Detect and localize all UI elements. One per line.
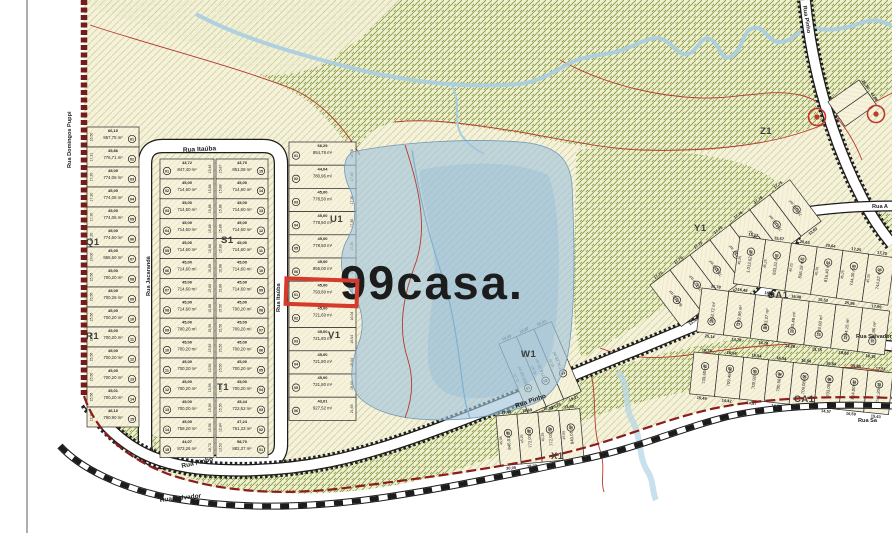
svg-text:721,60 m²: 721,60 m²	[313, 313, 333, 318]
block-label-w1: W1	[521, 349, 536, 360]
subdivision-map-svg: 66,29854,78 m²16,500144,04780,96 m²17,46…	[0, 0, 892, 533]
svg-text:15,56: 15,56	[90, 353, 94, 362]
svg-text:45,00: 45,00	[237, 379, 248, 384]
street-label-domingos-puppi: Rua Domingos Puppi	[67, 111, 73, 168]
svg-text:45,00: 45,00	[317, 282, 328, 287]
svg-text:714,60 m²: 714,60 m²	[232, 287, 252, 292]
svg-text:15,56: 15,56	[208, 403, 212, 412]
svg-text:05: 05	[165, 249, 169, 253]
svg-text:06: 06	[827, 377, 832, 381]
svg-text:03: 03	[130, 177, 134, 181]
svg-text:714,60 m²: 714,60 m²	[177, 227, 197, 232]
street-label-jacaranda: Rua Jacarandá	[146, 255, 152, 296]
svg-text:45,00: 45,00	[182, 180, 193, 185]
svg-text:01: 01	[294, 293, 298, 297]
svg-text:08: 08	[165, 309, 169, 313]
svg-text:45,00: 45,00	[237, 319, 248, 324]
lot-s1t1_b-03: 45,44722,62 m²15,5603	[216, 398, 268, 418]
svg-text:700,20 m²: 700,20 m²	[103, 395, 123, 400]
svg-text:45,00: 45,00	[317, 375, 328, 380]
svg-text:02: 02	[774, 253, 779, 258]
block-label-z1: Z1	[760, 126, 772, 137]
svg-text:46,10: 46,10	[108, 408, 119, 413]
svg-text:66,10: 66,10	[108, 128, 119, 133]
lot-q1r1-02: 45,86776,71 m²17,2102	[87, 147, 139, 167]
svg-text:45,00: 45,00	[182, 260, 193, 265]
lot-q1r1-09: 45,00700,26 m²15,5609	[87, 287, 139, 307]
lot-q1r1-10: 45,00700,20 m²15,5610	[87, 307, 139, 327]
lot-s1t1_a-05: 45,00714,60 m²15,8805	[160, 239, 214, 259]
block-t1: 43,70851,08 m²15,871545,00714,60 m²15,88…	[216, 159, 268, 458]
svg-text:700,20 m²: 700,20 m²	[232, 366, 252, 371]
svg-text:45,86: 45,86	[108, 148, 119, 153]
svg-text:45,00: 45,00	[237, 359, 248, 364]
svg-text:855,00 m²: 855,00 m²	[313, 266, 333, 271]
svg-text:03: 03	[548, 427, 552, 431]
svg-text:12: 12	[259, 229, 263, 233]
svg-text:700,20 m²: 700,20 m²	[103, 335, 123, 340]
svg-text:03: 03	[165, 209, 169, 213]
svg-text:45,00: 45,00	[237, 280, 248, 285]
svg-text:721,80 m²: 721,80 m²	[313, 382, 333, 387]
svg-text:05: 05	[259, 368, 263, 372]
svg-text:714,60 m²: 714,60 m²	[177, 287, 197, 292]
svg-text:03: 03	[259, 408, 263, 412]
svg-text:17,49: 17,49	[501, 409, 512, 415]
svg-text:13,53: 13,53	[219, 443, 223, 452]
svg-text:15,56: 15,56	[208, 383, 212, 392]
svg-text:15,56: 15,56	[90, 393, 94, 402]
svg-text:44,04: 44,04	[317, 166, 328, 171]
svg-text:15,88: 15,88	[208, 204, 212, 213]
svg-text:45,00: 45,00	[182, 200, 193, 205]
svg-text:05: 05	[852, 264, 857, 269]
svg-text:15,56: 15,56	[90, 293, 94, 302]
svg-text:17,21: 17,21	[90, 153, 94, 162]
svg-text:15,88: 15,88	[208, 224, 212, 233]
svg-text:45,00: 45,00	[182, 280, 193, 285]
svg-text:15,56: 15,56	[219, 344, 223, 353]
lot-q1r1-04: 45,00774,06 m²17,2004	[87, 187, 139, 207]
svg-text:01: 01	[130, 137, 134, 141]
block-label-x1: X1	[551, 451, 564, 462]
lot-u1v1-06: 43,01927,52 m²21,6506	[289, 397, 356, 420]
svg-text:07: 07	[165, 289, 169, 293]
svg-text:714,60 m²: 714,60 m²	[232, 267, 252, 272]
svg-text:927,52 m²: 927,52 m²	[313, 405, 333, 410]
svg-text:12: 12	[130, 357, 134, 361]
block-q1r1: 66,10857,75 m²16,500145,86776,71 m²17,21…	[87, 127, 139, 427]
svg-text:05: 05	[130, 217, 134, 221]
svg-text:13: 13	[259, 209, 263, 213]
svg-text:06: 06	[877, 268, 882, 273]
svg-text:13: 13	[852, 380, 857, 384]
svg-text:45,00: 45,00	[108, 308, 119, 313]
svg-text:01: 01	[749, 250, 754, 255]
lot-u1v1-03: 45,00778,50 m²17,3003	[289, 188, 356, 211]
svg-text:15,56: 15,56	[90, 273, 94, 282]
lot-s1t1_a-11: 45,00700,20 m²15,5611	[160, 358, 214, 378]
plat-map: 66,29854,78 m²16,500144,04780,96 m²17,46…	[0, 0, 892, 533]
svg-text:15,56: 15,56	[219, 304, 223, 313]
svg-text:774,06 m²: 774,06 m²	[103, 175, 123, 180]
svg-text:06: 06	[294, 409, 298, 413]
block-label-ca1: CA1	[794, 394, 815, 405]
svg-text:11: 11	[843, 336, 847, 340]
svg-text:02: 02	[165, 189, 169, 193]
svg-text:15,88: 15,88	[219, 204, 223, 213]
block-label-u1: U1	[330, 214, 343, 225]
svg-text:15,89: 15,89	[543, 405, 554, 411]
svg-text:06: 06	[294, 270, 298, 274]
svg-text:15,69: 15,69	[522, 407, 533, 413]
svg-text:700,20 m²: 700,20 m²	[232, 386, 252, 391]
lot-s1t1_b-09: 45,00714,60 m²15,8809	[216, 278, 268, 298]
lot-s1t1_b-06: 45,00700,20 m²15,5606	[216, 338, 268, 358]
svg-text:47,24: 47,24	[237, 419, 248, 424]
lot-u1v1-04: 45,00721,80 m²16,0404	[289, 351, 356, 374]
lot-s1t1_a-13: 45,00700,20 m²15,5613	[160, 398, 214, 418]
svg-text:45,00: 45,00	[237, 300, 248, 305]
svg-text:07: 07	[130, 257, 134, 261]
svg-text:45,00: 45,00	[237, 260, 248, 265]
svg-text:45,00: 45,00	[182, 379, 193, 384]
lot-s1t1_a-02: 45,00714,60 m²15,8802	[160, 179, 214, 199]
svg-text:15,88: 15,88	[219, 184, 223, 193]
svg-text:15,88: 15,88	[219, 284, 223, 293]
lot-s1t1_b-07: 45,00700,20 m²15,5607	[216, 318, 268, 338]
lot-s1t1_a-12: 45,00700,20 m²15,5612	[160, 378, 214, 398]
svg-text:15: 15	[130, 417, 134, 421]
svg-text:12: 12	[877, 383, 882, 387]
svg-text:10: 10	[130, 317, 134, 321]
svg-text:45,01: 45,01	[108, 388, 119, 393]
svg-text:700,20 m²: 700,20 m²	[103, 375, 123, 380]
svg-text:45,00: 45,00	[108, 288, 119, 293]
svg-text:45,00: 45,00	[108, 168, 119, 173]
svg-text:15,88: 15,88	[208, 284, 212, 293]
svg-text:45,00: 45,00	[182, 240, 193, 245]
svg-text:15: 15	[259, 169, 263, 173]
lot-s1t1_b-02: 47,24761,33 m²12,8402	[216, 418, 268, 438]
svg-text:774,06 m²: 774,06 m²	[103, 215, 123, 220]
lot-q1r1-07: 45,00855,60 m²19,0007	[87, 247, 139, 267]
svg-text:06: 06	[259, 348, 263, 352]
svg-text:700,20 m²: 700,20 m²	[177, 366, 197, 371]
svg-text:01: 01	[259, 448, 263, 452]
lot-q1r1-12: 45,00700,20 m²15,5612	[87, 347, 139, 367]
lot-s1t1_a-01: 43,72847,40 m²15,4801	[160, 159, 214, 179]
svg-text:778,50 m²: 778,50 m²	[313, 197, 333, 202]
svg-text:13: 13	[130, 377, 134, 381]
lot-s1t1_a-08: 45,00714,60 m²15,8808	[160, 298, 214, 318]
svg-text:761,33 m²: 761,33 m²	[232, 426, 252, 431]
svg-text:45,00: 45,00	[108, 348, 119, 353]
svg-text:45,00: 45,00	[108, 368, 119, 373]
lot-s1t1_a-03: 45,00714,50 m²15,8803	[160, 199, 214, 219]
svg-text:700,20 m²: 700,20 m²	[232, 346, 252, 351]
svg-text:45,00: 45,00	[108, 328, 119, 333]
svg-text:15,56: 15,56	[208, 364, 212, 373]
svg-text:780,96 m²: 780,96 m²	[313, 173, 333, 178]
svg-text:15,88: 15,88	[208, 304, 212, 313]
svg-text:05: 05	[294, 386, 298, 390]
svg-text:45,05: 45,05	[499, 436, 504, 445]
lot-q1r1-08: 45,00700,20 m²15,5608	[87, 267, 139, 287]
lot-s1t1_a-14: 45,00759,20 m²15,5614	[160, 418, 214, 438]
lot-q1r1-01: 66,10857,75 m²16,5001	[87, 127, 139, 147]
lot-s1t1_a-04: 45,00714,60 m²15,8804	[160, 219, 214, 239]
lot-q1r1-03: 45,00774,06 m²17,2003	[87, 167, 139, 187]
svg-text:45,25: 45,25	[541, 432, 546, 441]
svg-text:851,08 m²: 851,08 m²	[232, 167, 252, 172]
svg-text:15,56: 15,56	[90, 373, 94, 382]
svg-text:45,00: 45,00	[182, 319, 193, 324]
svg-text:714,60 m²: 714,60 m²	[232, 227, 252, 232]
svg-text:07: 07	[259, 328, 263, 332]
svg-text:15,56: 15,56	[219, 403, 223, 412]
svg-text:790,90 m²: 790,90 m²	[103, 415, 123, 420]
svg-text:01: 01	[506, 431, 510, 435]
street-label-rua-a: Rua A	[872, 204, 888, 210]
lot-s1t1_b-08: 45,00700,20 m²15,5608	[216, 298, 268, 318]
lot-u1v1-04: 45,00778,50 m²17,3004	[289, 212, 356, 235]
svg-text:25: 25	[790, 329, 795, 333]
svg-text:45,00: 45,00	[182, 359, 193, 364]
svg-text:45,00: 45,00	[317, 352, 328, 357]
lot-s1t1_a-15: 44,07873,26 m²18,7215	[160, 438, 214, 458]
block-label-r1: R1	[86, 331, 99, 342]
svg-text:43,70: 43,70	[237, 160, 248, 165]
svg-text:17,20: 17,20	[90, 213, 94, 222]
svg-text:45,05: 45,05	[562, 431, 567, 440]
svg-text:714,50 m²: 714,50 m²	[177, 207, 197, 212]
svg-text:03: 03	[294, 200, 298, 204]
svg-text:45,00: 45,00	[317, 236, 328, 241]
svg-text:15,88: 15,88	[208, 244, 212, 253]
svg-text:06: 06	[165, 269, 169, 273]
svg-text:12,84: 12,84	[219, 423, 223, 432]
svg-text:15,56: 15,56	[90, 313, 94, 322]
svg-text:10: 10	[259, 269, 263, 273]
svg-text:700,20 m²: 700,20 m²	[177, 386, 197, 391]
svg-text:01: 01	[165, 169, 169, 173]
lot-q1r1-14: 45,01700,20 m²15,5614	[87, 387, 139, 407]
svg-text:05: 05	[802, 375, 807, 379]
lot-s1t1_b-05: 45,00700,20 m²15,5605	[216, 358, 268, 378]
svg-text:873,26 m²: 873,26 m²	[177, 446, 197, 451]
svg-text:02: 02	[527, 429, 531, 433]
lot-u1v1-05: 45,00721,80 m²16,0405	[289, 374, 356, 397]
svg-text:15,56: 15,56	[219, 324, 223, 333]
svg-text:847,40 m²: 847,40 m²	[177, 167, 197, 172]
svg-text:45,00: 45,00	[108, 268, 119, 273]
svg-text:15,56: 15,56	[219, 364, 223, 373]
lot-q1r1-05: 45,00774,06 m²17,2005	[87, 207, 139, 227]
svg-text:714,60 m²: 714,60 m²	[177, 187, 197, 192]
svg-text:58,70: 58,70	[237, 439, 248, 444]
block-label-t1: T1	[217, 382, 229, 393]
block-label-da1: DA1	[768, 290, 789, 301]
svg-text:12: 12	[165, 388, 169, 392]
svg-text:45,00: 45,00	[108, 208, 119, 213]
lot-s1t1_b-14: 45,00714,60 m²15,8814	[216, 179, 268, 199]
svg-text:855,60 m²: 855,60 m²	[103, 255, 123, 260]
svg-text:714,60 m²: 714,60 m²	[232, 187, 252, 192]
block-label-y1: Y1	[694, 223, 707, 234]
svg-text:11: 11	[165, 368, 169, 372]
street-label-salvador-inner: Rua Salvador	[856, 334, 892, 340]
svg-text:09: 09	[165, 328, 169, 332]
svg-text:17,20: 17,20	[90, 193, 94, 202]
svg-text:11: 11	[130, 337, 134, 341]
svg-text:15,87: 15,87	[219, 165, 223, 174]
block-label-v1: V1	[328, 330, 341, 341]
svg-text:854,78 m²: 854,78 m²	[313, 150, 333, 155]
svg-text:45,44: 45,44	[237, 399, 248, 404]
watermark-99casa: 99casa.	[340, 256, 524, 309]
svg-text:793,80 m²: 793,80 m²	[313, 289, 333, 294]
svg-text:45,00: 45,00	[317, 329, 328, 334]
svg-text:08: 08	[130, 277, 134, 281]
svg-text:43,72: 43,72	[182, 160, 193, 165]
svg-text:16,50: 16,50	[90, 133, 94, 142]
svg-text:45,25: 45,25	[520, 434, 525, 443]
svg-text:45,00: 45,00	[237, 240, 248, 245]
svg-text:700,20 m²: 700,20 m²	[103, 275, 123, 280]
svg-text:02: 02	[130, 157, 134, 161]
block-label-s1: S1	[221, 235, 234, 246]
svg-text:09: 09	[259, 289, 263, 293]
svg-text:21,65: 21,65	[350, 404, 354, 413]
svg-text:13: 13	[165, 408, 169, 412]
svg-text:08: 08	[259, 309, 263, 313]
svg-text:15,56: 15,56	[208, 324, 212, 333]
svg-text:700,20 m²: 700,20 m²	[103, 315, 123, 320]
svg-text:857,75 m²: 857,75 m²	[103, 135, 123, 140]
svg-text:13,49: 13,49	[564, 404, 575, 410]
lot-s1t1_a-07: 45,00714,60 m²15,8807	[160, 278, 214, 298]
svg-text:714,60 m²: 714,60 m²	[232, 247, 252, 252]
lot-s1t1_b-13: 45,00714,60 m²15,8813	[216, 199, 268, 219]
svg-text:43,01: 43,01	[317, 398, 328, 403]
svg-text:02: 02	[294, 316, 298, 320]
svg-text:45,00: 45,00	[182, 419, 193, 424]
svg-text:02: 02	[259, 428, 263, 432]
svg-text:02: 02	[294, 177, 298, 181]
svg-text:45,00: 45,00	[182, 300, 193, 305]
svg-text:03: 03	[294, 340, 298, 344]
svg-text:700,26 m²: 700,26 m²	[103, 295, 123, 300]
svg-text:45,00: 45,00	[237, 180, 248, 185]
svg-text:05: 05	[294, 247, 298, 251]
svg-text:759,20 m²: 759,20 m²	[177, 426, 197, 431]
svg-text:721,80 m²: 721,80 m²	[313, 359, 333, 364]
svg-text:15,88: 15,88	[208, 184, 212, 193]
svg-text:19,00: 19,00	[90, 253, 94, 262]
svg-text:15: 15	[165, 448, 169, 452]
svg-text:09: 09	[130, 297, 134, 301]
lot-s1t1_b-01: 58,70882,37 m²13,5301	[216, 438, 268, 458]
svg-text:714,60 m²: 714,60 m²	[177, 247, 197, 252]
svg-text:15,56: 15,56	[208, 423, 212, 432]
svg-text:15,88: 15,88	[208, 264, 212, 273]
lot-s1t1_a-10: 45,00700,20 m²15,5610	[160, 338, 214, 358]
svg-text:722,62 m²: 722,62 m²	[232, 406, 252, 411]
svg-text:02: 02	[728, 367, 733, 371]
svg-text:10: 10	[165, 348, 169, 352]
svg-text:714,60 m²: 714,60 m²	[232, 207, 252, 212]
lot-s1t1_b-15: 43,70851,08 m²15,8715	[216, 159, 268, 179]
svg-text:700,20 m²: 700,20 m²	[177, 406, 197, 411]
svg-text:16,04: 16,04	[350, 335, 354, 344]
svg-text:15,88: 15,88	[219, 264, 223, 273]
lot-s1t1_b-10: 45,00714,60 m²15,8810	[216, 259, 268, 279]
svg-text:15,48: 15,48	[208, 165, 212, 174]
svg-text:778,50 m²: 778,50 m²	[313, 243, 333, 248]
lot-ca1-12: 17,5115,43741,20 m²12	[863, 365, 892, 420]
svg-text:45,00: 45,00	[317, 190, 328, 195]
svg-text:16,59: 16,59	[846, 411, 857, 417]
svg-text:03: 03	[800, 257, 805, 262]
svg-text:45,00: 45,00	[108, 188, 119, 193]
svg-text:07: 07	[736, 323, 741, 327]
svg-text:700,20 m²: 700,20 m²	[232, 326, 252, 331]
svg-text:45,00: 45,00	[237, 339, 248, 344]
svg-text:714,60 m²: 714,60 m²	[177, 307, 197, 312]
svg-text:01: 01	[703, 364, 708, 368]
street-label-salvador-east: Rua Sa	[858, 418, 878, 424]
svg-text:776,71 m²: 776,71 m²	[103, 155, 123, 160]
svg-text:01: 01	[294, 154, 298, 158]
svg-text:11: 11	[259, 249, 263, 253]
lot-q1r1-13: 45,00700,20 m²15,5613	[87, 367, 139, 387]
svg-text:45,00: 45,00	[317, 213, 328, 218]
svg-text:15,56: 15,56	[208, 344, 212, 353]
svg-text:45,00: 45,00	[182, 339, 193, 344]
svg-text:700,20 m²: 700,20 m²	[103, 355, 123, 360]
svg-text:66,29: 66,29	[317, 143, 328, 148]
lot-u1v1-03: 45,00721,80 m²16,0403	[289, 328, 356, 351]
svg-text:45,00: 45,00	[237, 200, 248, 205]
lot-s1t1_a-06: 45,00714,60 m²15,8806	[160, 259, 214, 279]
svg-text:44,07: 44,07	[182, 439, 193, 444]
svg-text:45,00: 45,00	[182, 399, 193, 404]
svg-text:700,20 m²: 700,20 m²	[177, 326, 197, 331]
svg-text:16,04: 16,04	[350, 312, 354, 321]
svg-text:714,60 m²: 714,60 m²	[177, 267, 197, 272]
svg-text:08: 08	[763, 326, 768, 330]
svg-text:45,00: 45,00	[182, 220, 193, 225]
svg-text:774,60 m²: 774,60 m²	[103, 235, 123, 240]
svg-text:17,20: 17,20	[90, 173, 94, 182]
svg-text:45,00: 45,00	[317, 259, 328, 264]
svg-text:700,20 m²: 700,20 m²	[177, 346, 197, 351]
svg-text:700,20 m²: 700,20 m²	[232, 307, 252, 312]
svg-text:774,06 m²: 774,06 m²	[103, 195, 123, 200]
block-label-q1: Q1	[86, 237, 100, 248]
svg-text:18,72: 18,72	[208, 443, 212, 452]
svg-text:45,00: 45,00	[237, 220, 248, 225]
svg-text:882,37 m²: 882,37 m²	[232, 446, 252, 451]
street-label-itauba-vertical: Rua Itaúba	[276, 283, 282, 312]
svg-text:45,00: 45,00	[108, 228, 119, 233]
svg-text:45,00: 45,00	[108, 248, 119, 253]
lot-s1t1_a-09: 45,00700,20 m²15,5609	[160, 318, 214, 338]
svg-text:06: 06	[130, 237, 134, 241]
svg-text:15,88: 15,88	[219, 224, 223, 233]
svg-text:03: 03	[753, 370, 758, 374]
